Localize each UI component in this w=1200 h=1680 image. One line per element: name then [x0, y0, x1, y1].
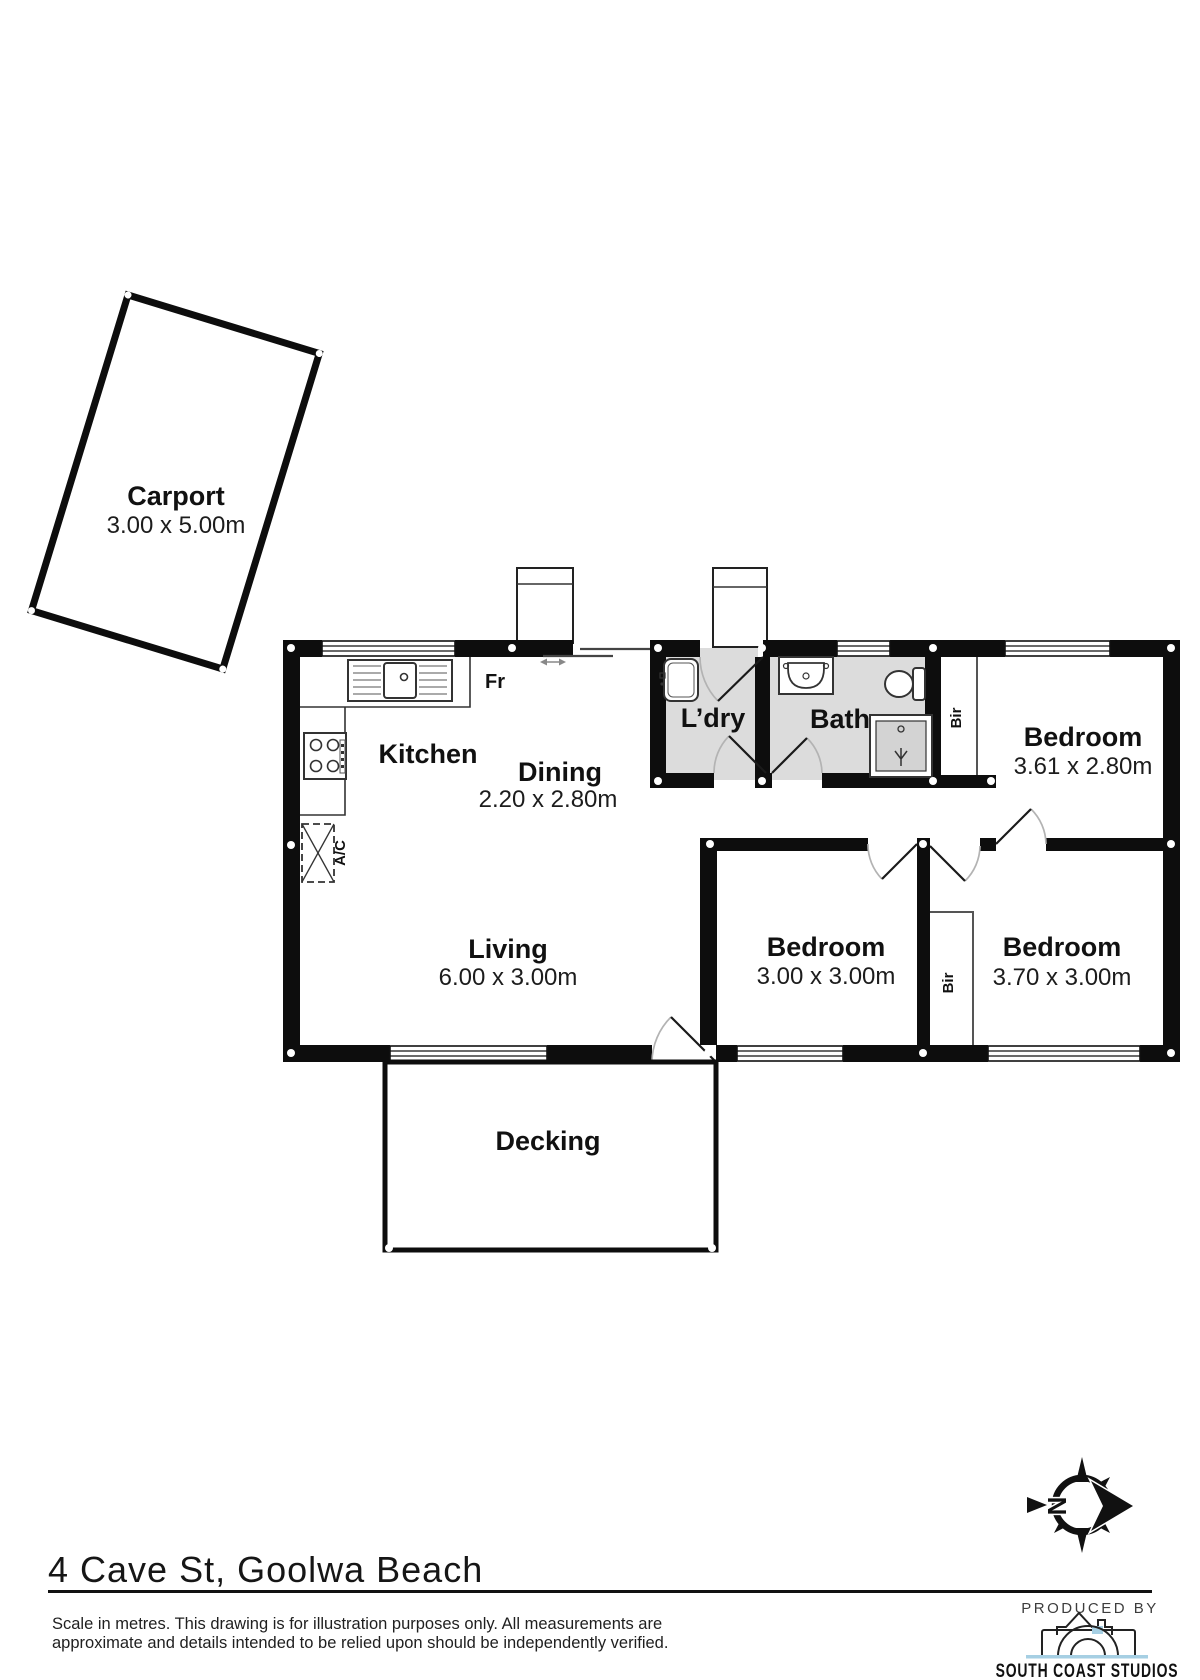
room-label-bedroom3: Bedroom [1003, 932, 1122, 962]
decking-outline [385, 1062, 716, 1252]
window-living [390, 1046, 547, 1061]
window-bath [837, 641, 890, 656]
fridge-label: Fr [485, 671, 505, 693]
room-label-bath: Bath [810, 704, 870, 734]
room-label-kitchen: Kitchen [378, 739, 477, 769]
floorplan-page: Carport 3.00 x 5.00m [0, 0, 1200, 1680]
window-kitchen [322, 641, 455, 656]
window-bedroom2 [737, 1046, 843, 1061]
camera-house-icon [1026, 1613, 1148, 1659]
disclaimer-line1: Scale in metres. This drawing is for ill… [52, 1615, 662, 1633]
property-address: 4 Cave St, Goolwa Beach [48, 1549, 483, 1590]
footer: 4 Cave St, Goolwa Beach Scale in metres.… [48, 1549, 1152, 1652]
room-dims-bedroom3: 3.70 x 3.00m [993, 964, 1132, 991]
toilet [885, 668, 925, 700]
room-label-laundry: L’dry [681, 703, 746, 733]
laundry-tub [660, 659, 698, 701]
entry-porches [517, 568, 767, 647]
slide-arrow-icon [540, 659, 566, 666]
compass-north-icon: N [1027, 1457, 1133, 1553]
carport-outline: Carport 3.00 x 5.00m [27, 291, 323, 674]
footer-divider [48, 1590, 1152, 1593]
window-bedroom3 [988, 1046, 1140, 1061]
disclaimer-line2: approximate and details intended to be r… [52, 1634, 668, 1652]
compass-n-label: N [1042, 1497, 1072, 1516]
studio-name-label: SOUTH COAST STUDIOS [996, 1660, 1179, 1680]
stove-cooktop [304, 733, 346, 779]
room-label-decking: Decking [495, 1126, 600, 1156]
room-label-bedroom2: Bedroom [767, 932, 886, 962]
kitchen-fixtures [300, 657, 470, 882]
room-dims-living: 6.00 x 3.00m [439, 964, 578, 991]
floorplan-drawing: Carport 3.00 x 5.00m [0, 0, 1200, 1680]
ac-label: A/C [332, 840, 349, 866]
robe1-label: Bir [948, 707, 965, 728]
room-dims-dining: 2.20 x 2.80m [479, 786, 618, 813]
south-coast-studios-logo: PRODUCED BY SOUTH COAST STUDIOS [996, 1600, 1179, 1680]
robe2-label: Bir [940, 972, 957, 993]
ac-unit [302, 824, 334, 882]
room-label-living: Living [468, 934, 548, 964]
room-label-bedroom1: Bedroom [1024, 722, 1143, 752]
kitchen-sink [348, 660, 452, 701]
porch-steps-dining [517, 568, 573, 643]
room-dims-bedroom1: 3.61 x 2.80m [1014, 753, 1153, 780]
shower [870, 715, 932, 777]
porch-steps-laundry [713, 568, 767, 647]
window-bedroom1 [1005, 641, 1110, 656]
produced-by-label: PRODUCED BY [1021, 1600, 1159, 1617]
vanity-basin [779, 657, 833, 694]
carport-label: Carport [127, 481, 225, 511]
room-dims-bedroom2: 3.00 x 3.00m [757, 963, 896, 990]
carport-dims: 3.00 x 5.00m [107, 512, 246, 539]
room-label-dining: Dining [518, 757, 602, 787]
